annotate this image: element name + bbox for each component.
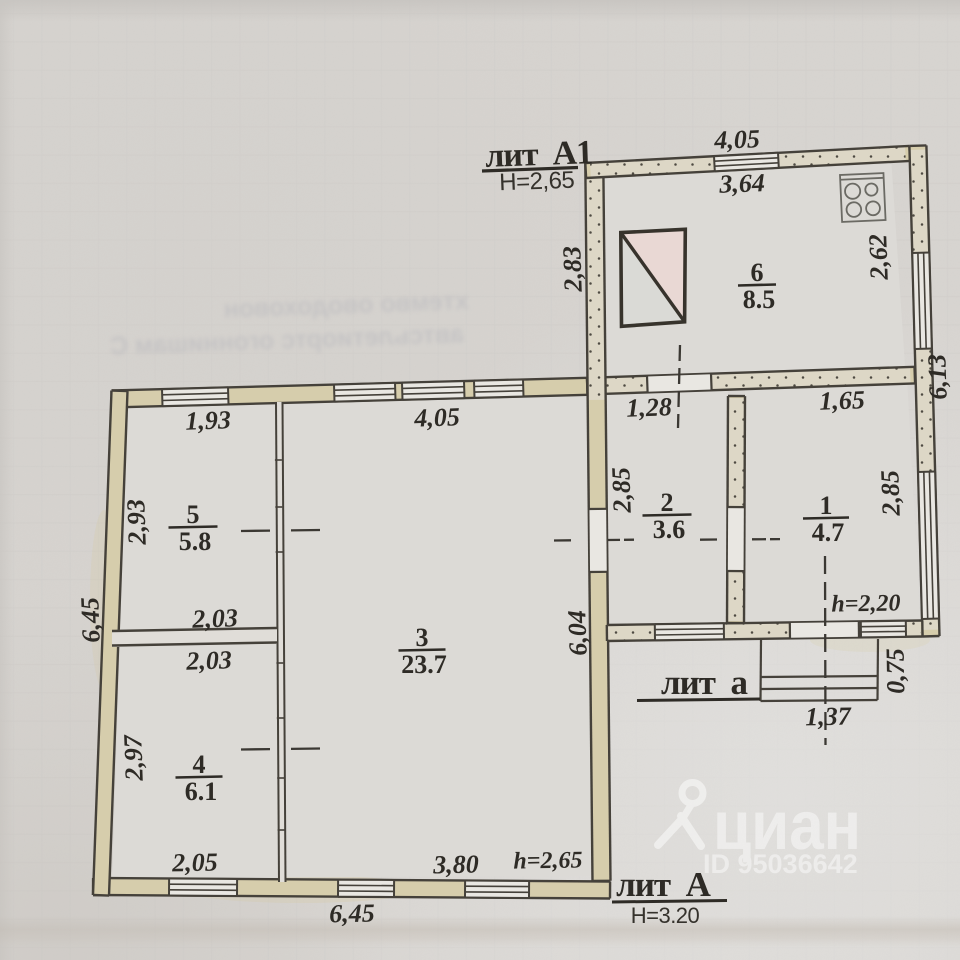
svg-text:2,93: 2,93: [121, 499, 152, 546]
svg-text:6,45: 6,45: [329, 899, 375, 929]
svg-text:h=2,65: h=2,65: [513, 847, 582, 874]
svg-text:4,05: 4,05: [713, 124, 760, 155]
svg-text:0,75: 0,75: [881, 648, 911, 694]
svg-text:3,64: 3,64: [718, 168, 765, 199]
svg-text:1,28: 1,28: [626, 392, 672, 423]
svg-text:Н=3.20: Н=3.20: [631, 903, 700, 928]
svg-text:1,93: 1,93: [185, 405, 231, 436]
svg-text:2,83: 2,83: [557, 246, 588, 293]
svg-text:5: 5: [187, 500, 200, 529]
svg-text:2,85: 2,85: [606, 467, 637, 514]
svg-text:2,05: 2,05: [171, 848, 218, 878]
svg-text:1,37: 1,37: [805, 702, 852, 732]
svg-text:6.1: 6.1: [185, 777, 218, 806]
svg-text:Н=2,65: Н=2,65: [499, 167, 575, 197]
svg-text:h=2,20: h=2,20: [831, 590, 900, 617]
svg-text:4: 4: [193, 750, 206, 779]
svg-text:5.8: 5.8: [179, 527, 212, 556]
svg-text:2,62: 2,62: [863, 234, 894, 281]
svg-text:лит А: лит А: [616, 865, 711, 904]
svg-text:6: 6: [751, 258, 764, 287]
svg-text:6,04: 6,04: [562, 610, 593, 656]
svg-text:1,65: 1,65: [819, 385, 865, 416]
svg-text:23.7: 23.7: [401, 650, 447, 679]
svg-text:1: 1: [820, 491, 833, 520]
svg-text:2,03: 2,03: [191, 603, 238, 634]
svg-text:3,80: 3,80: [432, 850, 479, 880]
svg-text:2: 2: [661, 488, 674, 517]
svg-text:2,97: 2,97: [118, 734, 149, 782]
svg-text:3: 3: [416, 623, 429, 652]
svg-text:лит а: лит а: [661, 663, 747, 702]
svg-text:6,13: 6,13: [922, 354, 953, 400]
svg-text:2,03: 2,03: [185, 645, 232, 676]
svg-text:4.7: 4.7: [812, 518, 845, 547]
svg-text:8.5: 8.5: [743, 285, 776, 314]
svg-text:ID 95036642: ID 95036642: [703, 849, 858, 879]
svg-text:4,05: 4,05: [413, 402, 460, 433]
svg-text:2,85: 2,85: [875, 470, 906, 517]
svg-text:6,45: 6,45: [75, 597, 106, 643]
svg-text:3.6: 3.6: [653, 515, 686, 544]
